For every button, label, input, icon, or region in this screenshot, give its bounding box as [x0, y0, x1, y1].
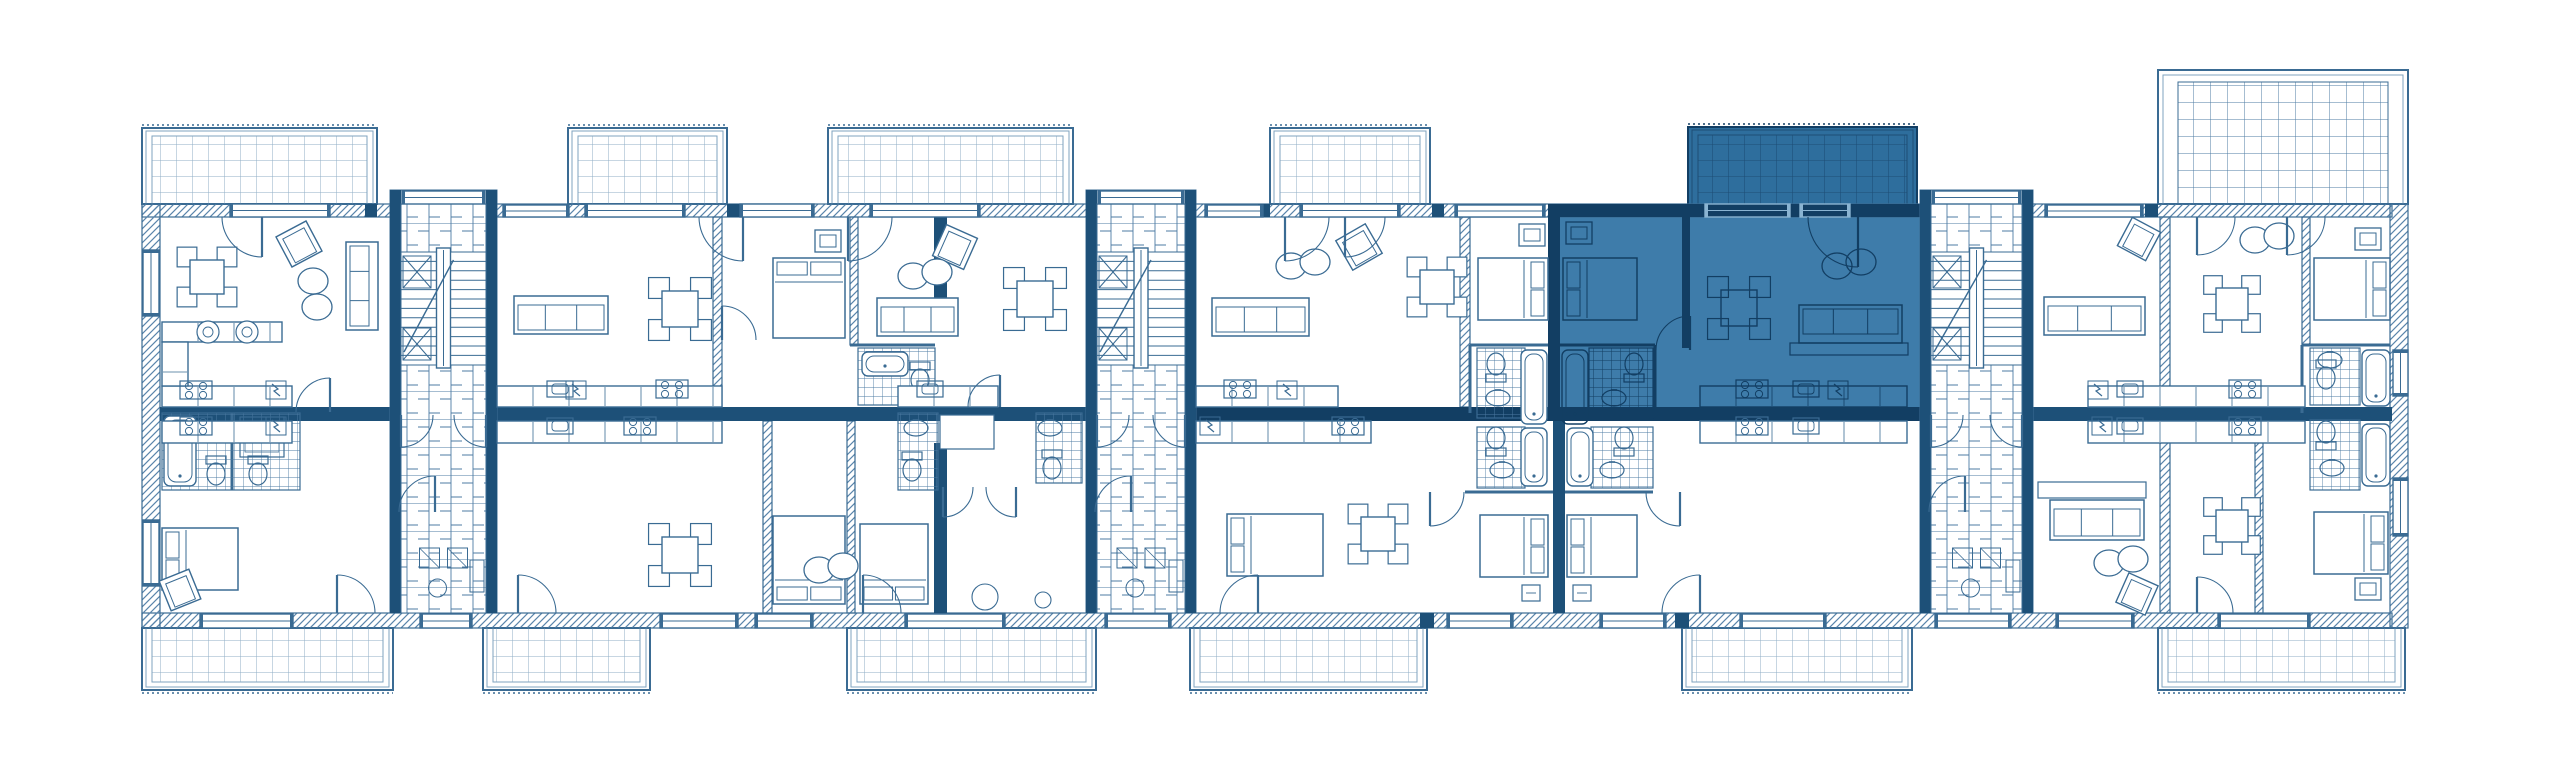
apartment-unit-selected[interactable] [1548, 127, 1920, 421]
core-wall-right [2022, 190, 2033, 613]
rect [482, 191, 485, 204]
balcony-bottom-2 [483, 628, 650, 693]
window [1932, 191, 2021, 204]
window [420, 614, 472, 628]
balcony-bottom-5-deck [1692, 628, 1902, 682]
balcony-bottom-3-deck [857, 628, 1086, 682]
balcony-bottom-1 [142, 628, 393, 693]
balcony-top-2 [568, 125, 727, 204]
balcony-bottom-4-deck [1200, 628, 1417, 682]
apartment-unit[interactable] [160, 421, 390, 628]
rect [1105, 614, 1108, 628]
rect [2393, 393, 2408, 396]
window [1098, 191, 1184, 204]
rect [2008, 614, 2011, 628]
bathtub-drain [1532, 412, 1535, 415]
apartment-unit[interactable] [1196, 421, 1548, 628]
core-wall-left [1920, 190, 1931, 613]
apartment-unit[interactable] [2033, 70, 2392, 407]
window [143, 520, 159, 586]
rect [469, 614, 472, 628]
window [2393, 478, 2408, 536]
balcony-top-4-deck [1280, 136, 1420, 204]
rect [1098, 191, 1101, 204]
balcony-bottom-3 [847, 628, 1096, 693]
rect [402, 191, 405, 204]
core-landing-top [1931, 204, 2022, 252]
balcony-bottom-4 [1190, 628, 1427, 693]
core-landing-top [401, 204, 486, 252]
floor-plan [0, 0, 2560, 779]
core-wall-right [1185, 190, 1196, 613]
balcony-bottom-2-deck [493, 628, 640, 682]
stair-core-2 [1086, 190, 1196, 613]
core-corridor [1931, 365, 2022, 613]
balcony-top-3 [828, 125, 1073, 204]
wall-solid [2033, 407, 2392, 421]
apartment-unit[interactable] [497, 204, 934, 407]
core-corridor [1097, 365, 1185, 613]
rect [143, 250, 159, 253]
window [143, 250, 159, 316]
balcony-top-3-deck [838, 136, 1063, 204]
window [1935, 614, 2011, 628]
rect [1181, 191, 1184, 204]
rect [143, 583, 159, 586]
rect [420, 614, 423, 628]
apartment-unit[interactable] [160, 204, 390, 407]
balcony-bottom-6 [2158, 628, 2405, 693]
wall-hatched [2390, 204, 2408, 628]
apartment-unit[interactable] [1196, 204, 1548, 407]
rect [2393, 478, 2408, 481]
rect [1932, 191, 1935, 204]
rect [2393, 350, 2408, 353]
balcony-bottom-1-deck [152, 628, 383, 682]
apartment-unit[interactable] [1548, 421, 1920, 628]
window [1105, 614, 1171, 628]
wall-solid [497, 407, 1086, 421]
core-wall-left [390, 190, 401, 613]
rect [2018, 191, 2021, 204]
window [402, 191, 485, 204]
rect [143, 313, 159, 316]
apartment-unit[interactable] [497, 421, 1086, 628]
balcony-top-4 [1270, 125, 1430, 204]
core-wall-right [486, 190, 497, 613]
core-wall-left [1086, 190, 1097, 613]
balcony-top-1-deck [152, 136, 367, 204]
rect [143, 520, 159, 523]
balcony-bottom-5 [1682, 628, 1912, 693]
floor-plan-canvas [0, 0, 2560, 779]
rect [1168, 614, 1171, 628]
balcony-top-2-deck [578, 136, 717, 204]
balcony-bottom-6-deck [2168, 628, 2395, 682]
stair-core-1 [390, 190, 497, 613]
apartment-unit[interactable] [2033, 421, 2392, 628]
window [2393, 350, 2408, 396]
stair-core-3 [1920, 190, 2033, 613]
rect [1935, 614, 1938, 628]
balcony-top-1 [142, 125, 377, 204]
apartment-unit[interactable] [947, 204, 1086, 407]
core-corridor [401, 365, 486, 613]
core-landing-top [1097, 204, 1185, 252]
rect [2393, 533, 2408, 536]
